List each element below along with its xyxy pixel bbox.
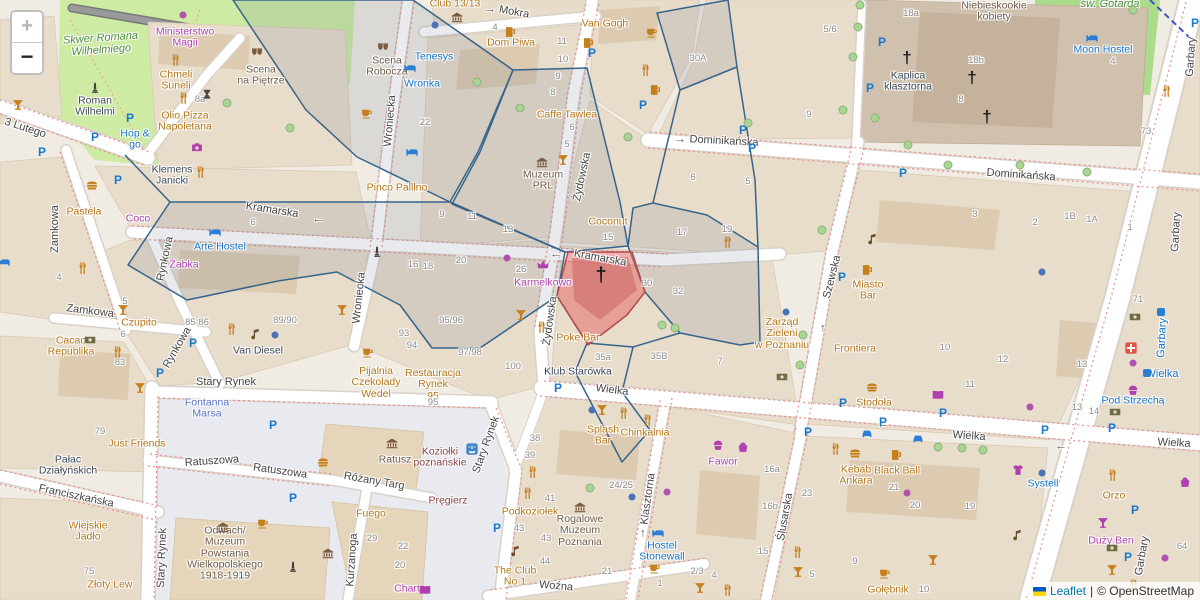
transit-stop-icon [1157,308,1165,316]
map-tiles [0,0,1200,600]
zoom-control: + − [10,10,44,75]
zoom-in-button[interactable]: + [12,12,42,43]
tree-icon [818,226,827,235]
tree-icon [979,446,988,455]
poi-dot [1039,269,1046,276]
tree-icon [1083,168,1092,177]
tree-icon [1129,6,1138,15]
tree-icon [624,133,633,142]
tree-icon [934,443,943,452]
poi-dot [432,22,439,29]
poi-dot [783,309,790,316]
attribution-separator: | [1090,584,1093,598]
tree-icon [958,444,967,453]
openstreetmap-link[interactable]: © OpenStreetMap [1097,584,1194,598]
tree-icon [944,161,953,170]
tree-icon [799,331,808,340]
tree-icon [856,1,865,10]
poi-dot [1027,404,1034,411]
tree-icon [1016,161,1025,170]
tree-icon [854,23,863,32]
tree-icon [796,361,805,370]
tree-icon [473,78,482,87]
tree-icon [671,324,680,333]
poi-dot [1039,470,1046,477]
poi-dot [180,12,187,19]
tree-icon [871,114,880,123]
tree-icon [904,141,913,150]
tree-icon [516,104,525,113]
poi-dot [589,407,596,414]
map-canvas[interactable]: 3 LutegoMokra→Dominikańska→DominikańskaK… [0,0,1200,600]
tree-icon [849,53,858,62]
transit-stop-icon [1143,369,1151,377]
attribution-bar: Leaflet | © OpenStreetMap [1027,582,1200,600]
tree-icon [744,119,753,128]
tree-icon [586,484,595,493]
ukraine-flag-icon [1033,587,1046,596]
poi-dot [1130,360,1137,367]
poi-dot [904,490,911,497]
tree-icon [223,99,232,108]
poi-dot [272,332,279,339]
tree-icon [286,124,295,133]
poi-dot [504,255,511,262]
poi-dot [629,494,636,501]
tree-icon [839,106,848,115]
zoom-out-button[interactable]: − [12,43,42,73]
tree-icon [658,321,667,330]
leaflet-link[interactable]: Leaflet [1050,584,1086,598]
poi-dot [1162,555,1169,562]
poi-dot [664,489,671,496]
